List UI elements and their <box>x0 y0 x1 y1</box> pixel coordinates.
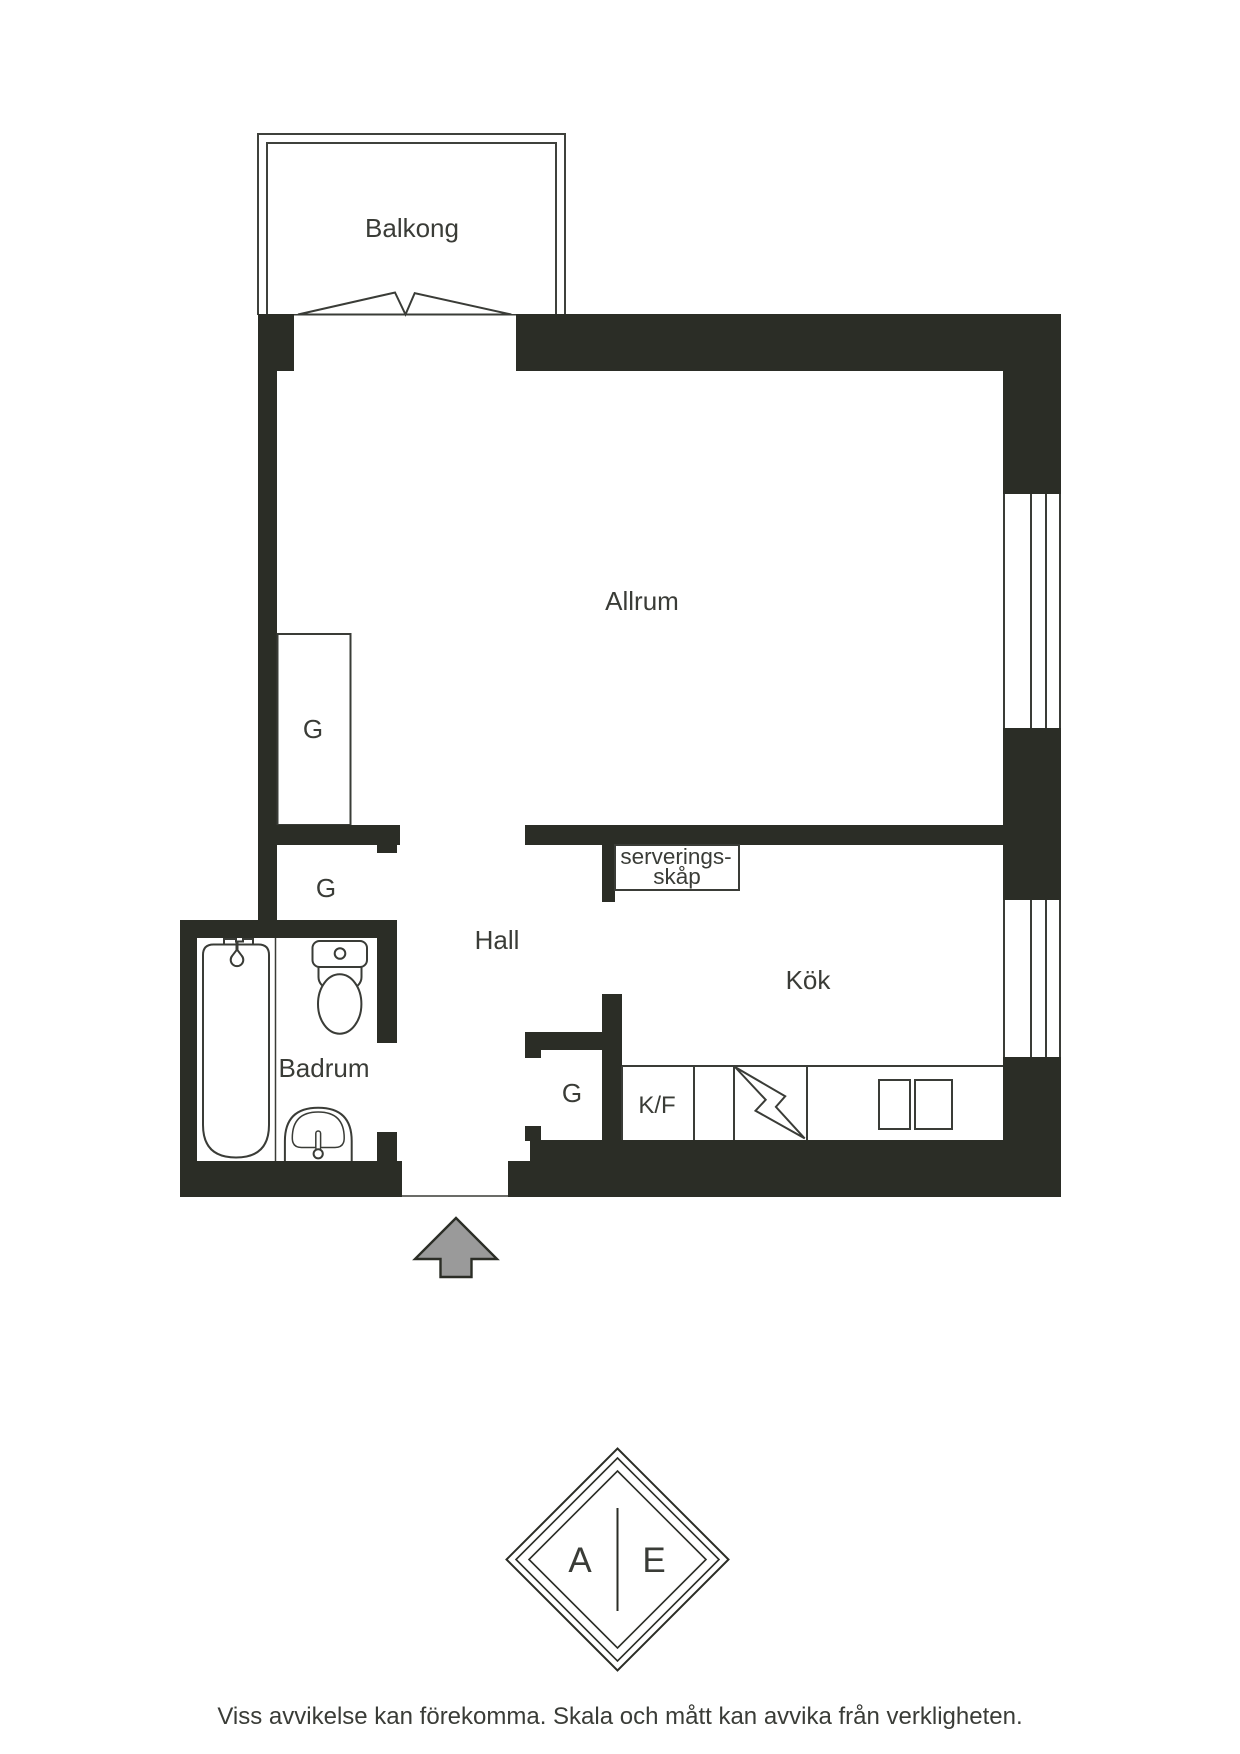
svg-text:K/F: K/F <box>638 1092 675 1119</box>
svg-text:A: A <box>568 1541 592 1580</box>
svg-text:G: G <box>303 714 323 744</box>
svg-text:skåp: skåp <box>653 864 701 889</box>
svg-text:G: G <box>316 873 336 903</box>
svg-text:Kök: Kök <box>786 965 832 995</box>
svg-text:Hall: Hall <box>475 925 520 955</box>
svg-text:E: E <box>642 1541 665 1580</box>
svg-text:Badrum: Badrum <box>278 1053 369 1083</box>
svg-text:Viss avvikelse kan förekomma.: Viss avvikelse kan förekomma. Skala och … <box>217 1703 1022 1730</box>
svg-text:Allrum: Allrum <box>605 586 679 616</box>
svg-text:Balkong: Balkong <box>365 213 459 243</box>
svg-text:G: G <box>562 1078 582 1108</box>
